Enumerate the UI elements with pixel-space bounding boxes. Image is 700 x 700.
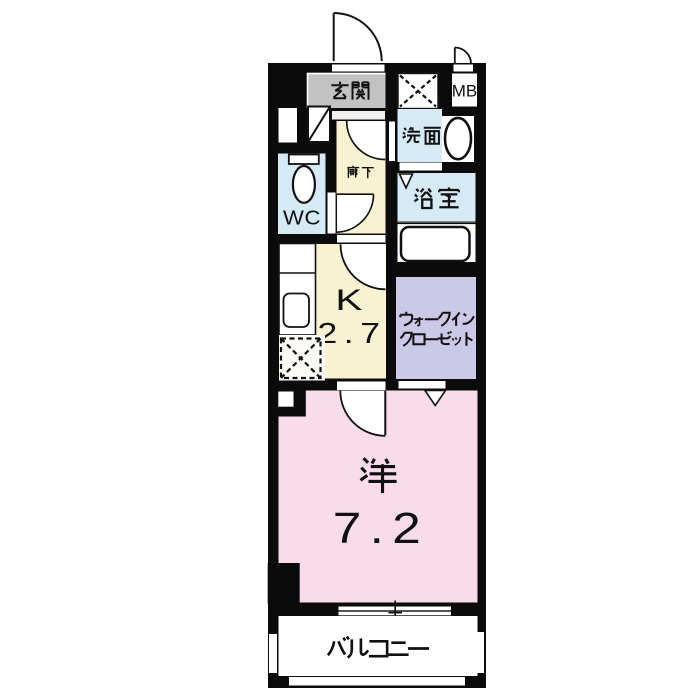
svg-text:WC: WC [283, 206, 321, 229]
svg-text:K: K [335, 283, 362, 317]
svg-text:7.2: 7.2 [333, 504, 429, 553]
svg-text:MB: MB [452, 81, 478, 100]
svg-text:2.7: 2.7 [318, 317, 387, 349]
